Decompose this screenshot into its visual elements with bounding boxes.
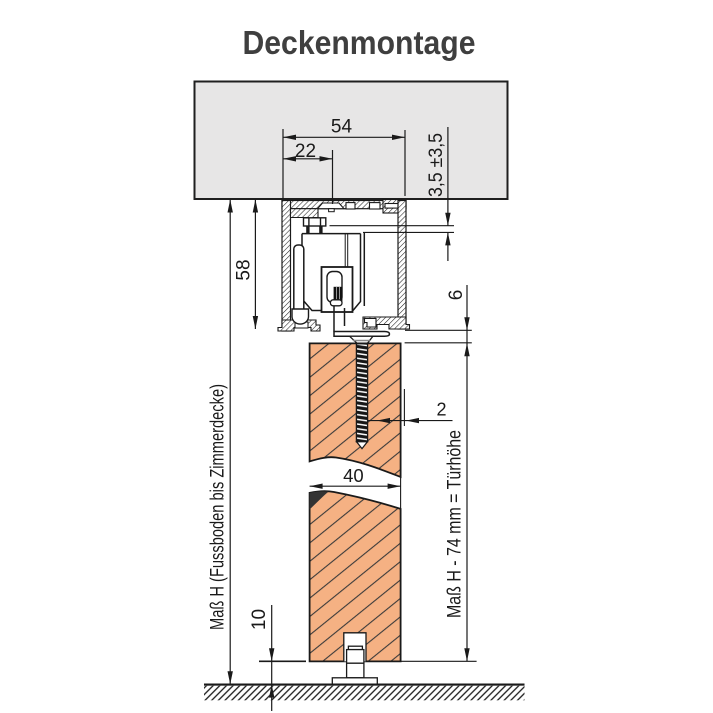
svg-text:3,5 ±3,5: 3,5 ±3,5	[425, 133, 447, 197]
svg-text:54: 54	[331, 117, 353, 138]
svg-text:22: 22	[295, 141, 316, 162]
svg-text:58: 58	[234, 259, 255, 280]
svg-text:2: 2	[436, 400, 446, 420]
svg-text:40: 40	[343, 465, 364, 486]
svg-text:Maß H (Fussboden bis Zimmerdec: Maß H (Fussboden bis Zimmerdecke)	[208, 384, 229, 630]
svg-text:10: 10	[249, 609, 270, 630]
svg-text:6: 6	[446, 290, 467, 301]
svg-text:Deckenmontage: Deckenmontage	[243, 24, 476, 61]
svg-text:Maß H - 74 mm = Türhöhe: Maß H - 74 mm = Türhöhe	[445, 430, 466, 618]
